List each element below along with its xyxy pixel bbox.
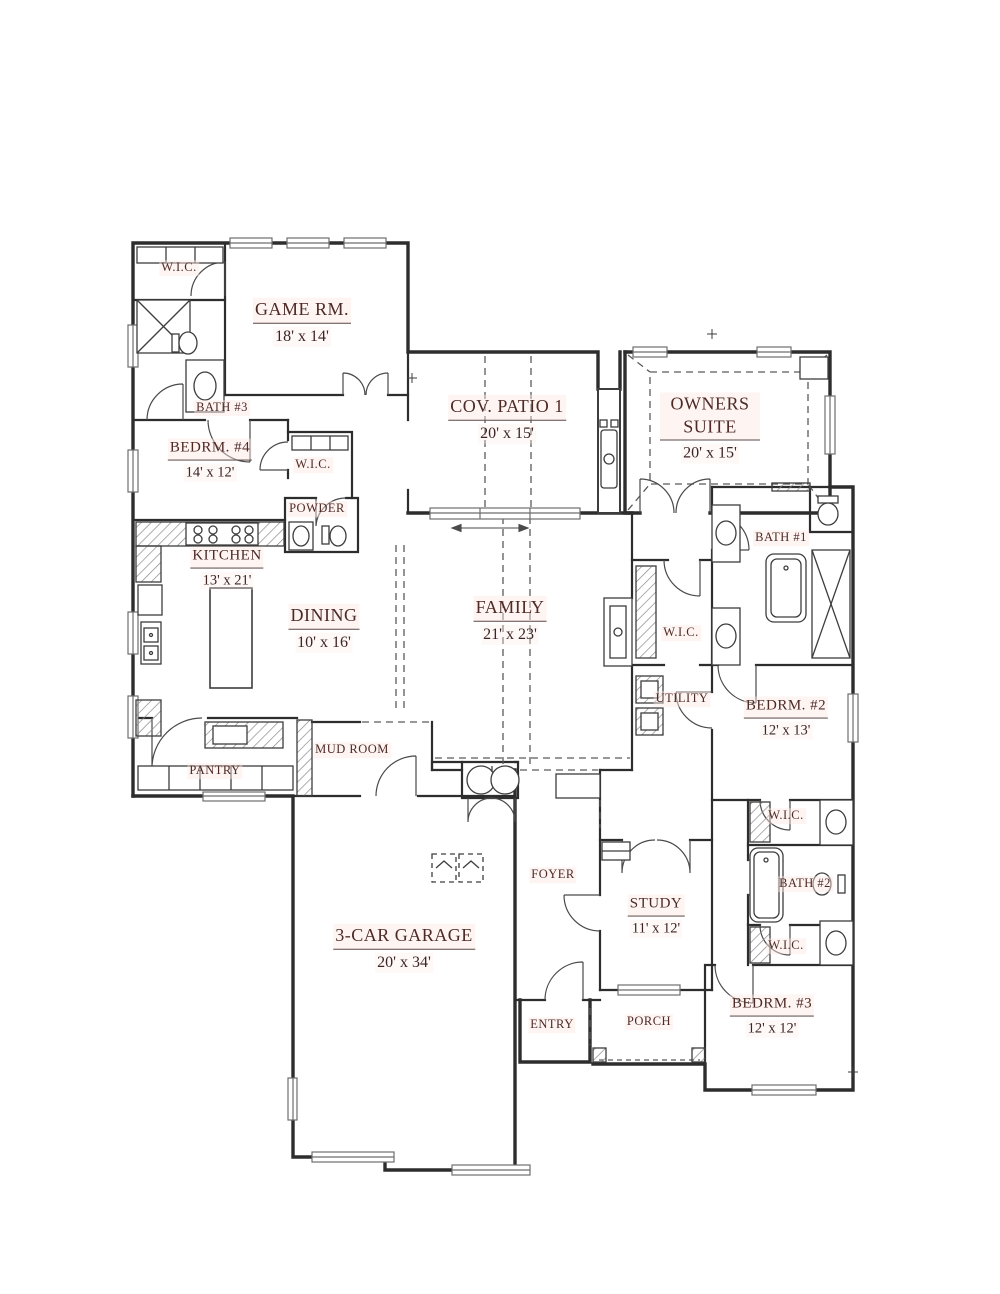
closet-shelves: [292, 436, 348, 450]
bathtub: [766, 554, 806, 622]
window: [633, 347, 667, 357]
bathroom-sink: [712, 505, 740, 562]
utility-sink: [467, 766, 519, 794]
window: [757, 347, 791, 357]
shower: [812, 550, 850, 658]
floor-plan-page: W.I.C. GAME RM. 18' x 14' BATH #3 BEDRM.…: [0, 0, 1000, 1294]
sliding-door: [430, 508, 580, 519]
toilet: [813, 873, 845, 895]
floor-plan-drawing: [0, 0, 1000, 1294]
window: [128, 612, 138, 654]
water-heater: [432, 854, 483, 882]
toilet: [322, 526, 346, 546]
window: [128, 450, 138, 492]
pantry-shelves: [138, 766, 293, 790]
bathroom-sink: [712, 608, 740, 665]
bathroom-sink: [820, 921, 853, 965]
window: [752, 1085, 816, 1095]
toilet: [172, 332, 197, 354]
cooktop: [186, 523, 258, 545]
closet-shelves: [750, 927, 770, 963]
linen-closet: [800, 357, 828, 379]
kitchen-island: [210, 588, 252, 688]
closet-shelves: [636, 566, 656, 658]
bathroom-sink: [820, 800, 853, 845]
window: [452, 1165, 530, 1175]
bathroom-sink: [289, 522, 313, 550]
toilet: [818, 496, 838, 525]
window: [344, 238, 386, 248]
window: [288, 1078, 297, 1120]
outdoor-fireplace: [598, 389, 620, 513]
half-wall-hatch: [772, 483, 810, 491]
window: [230, 238, 272, 248]
closet-shelves: [750, 802, 770, 842]
washer-dryer: [636, 676, 663, 735]
pantry-cabinet: [205, 722, 283, 748]
window: [848, 694, 858, 742]
window: [312, 1152, 394, 1162]
window: [618, 985, 680, 995]
foyer-closet: [556, 774, 630, 860]
closet-shelves: [137, 247, 223, 263]
exterior-walls: [133, 243, 853, 1170]
window: [287, 238, 329, 248]
windows: [128, 238, 858, 1175]
mudroom-bench: [297, 720, 312, 796]
bathroom-sink: [186, 360, 224, 412]
window: [203, 792, 265, 801]
fireplace: [604, 598, 632, 666]
dimension-arrow: [452, 525, 528, 532]
wall-oven: [138, 585, 162, 664]
window: [825, 396, 835, 454]
bathtub: [750, 848, 783, 922]
